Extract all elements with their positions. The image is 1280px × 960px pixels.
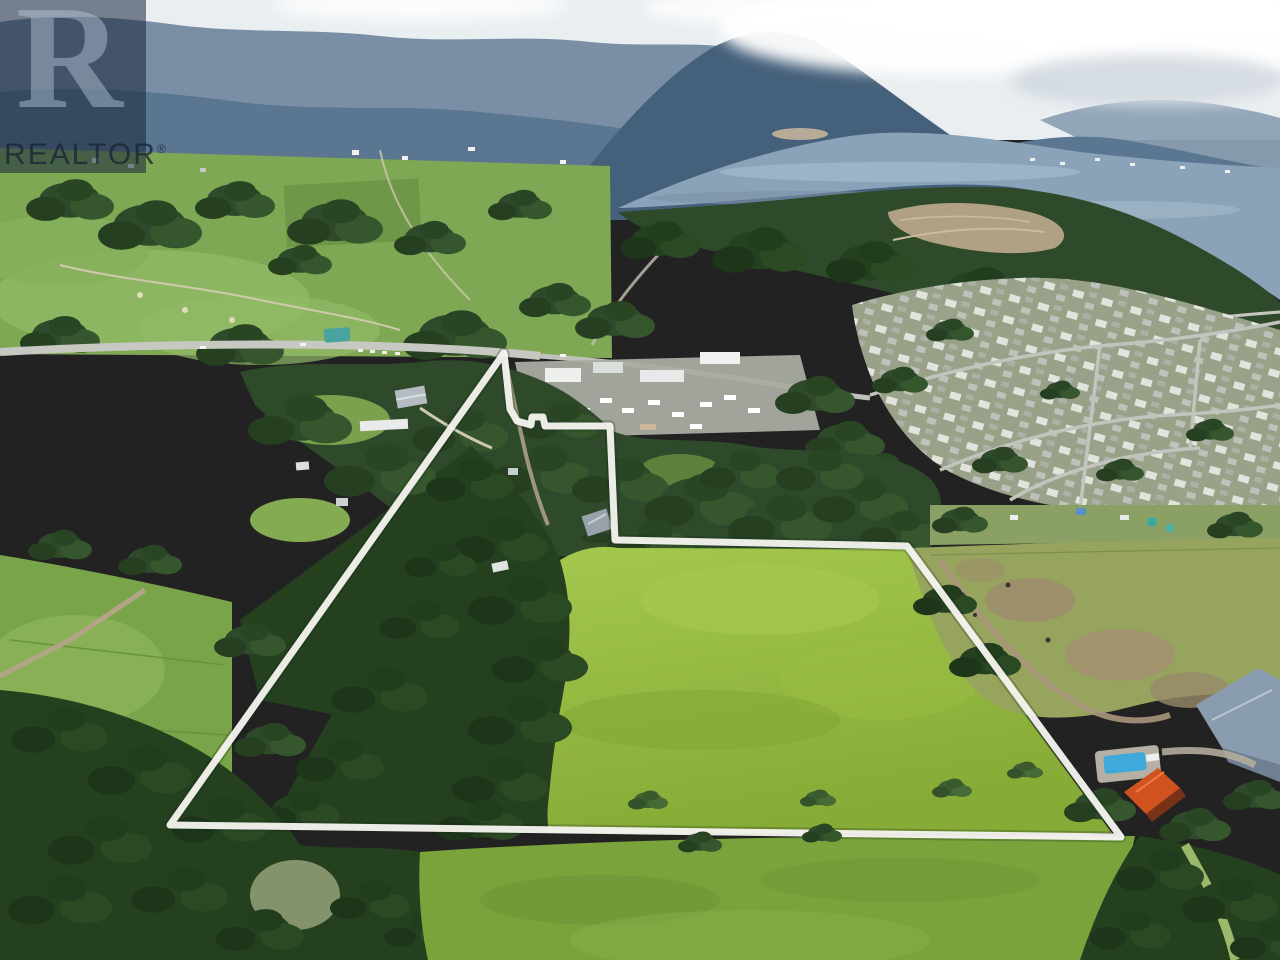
realtor-logo-r: R [16, 0, 123, 132]
realtor-wordmark: REALTOR® [4, 138, 166, 172]
teal-roof-building [324, 327, 351, 343]
registered-trademark-symbol: ® [157, 142, 166, 156]
bottom-field [419, 836, 1135, 960]
realtor-brand-text: REALTOR [4, 138, 157, 171]
aerial-photo: R REALTOR® [0, 0, 1280, 960]
scene [0, 0, 1280, 960]
realtor-watermark: R REALTOR® [0, 0, 146, 173]
